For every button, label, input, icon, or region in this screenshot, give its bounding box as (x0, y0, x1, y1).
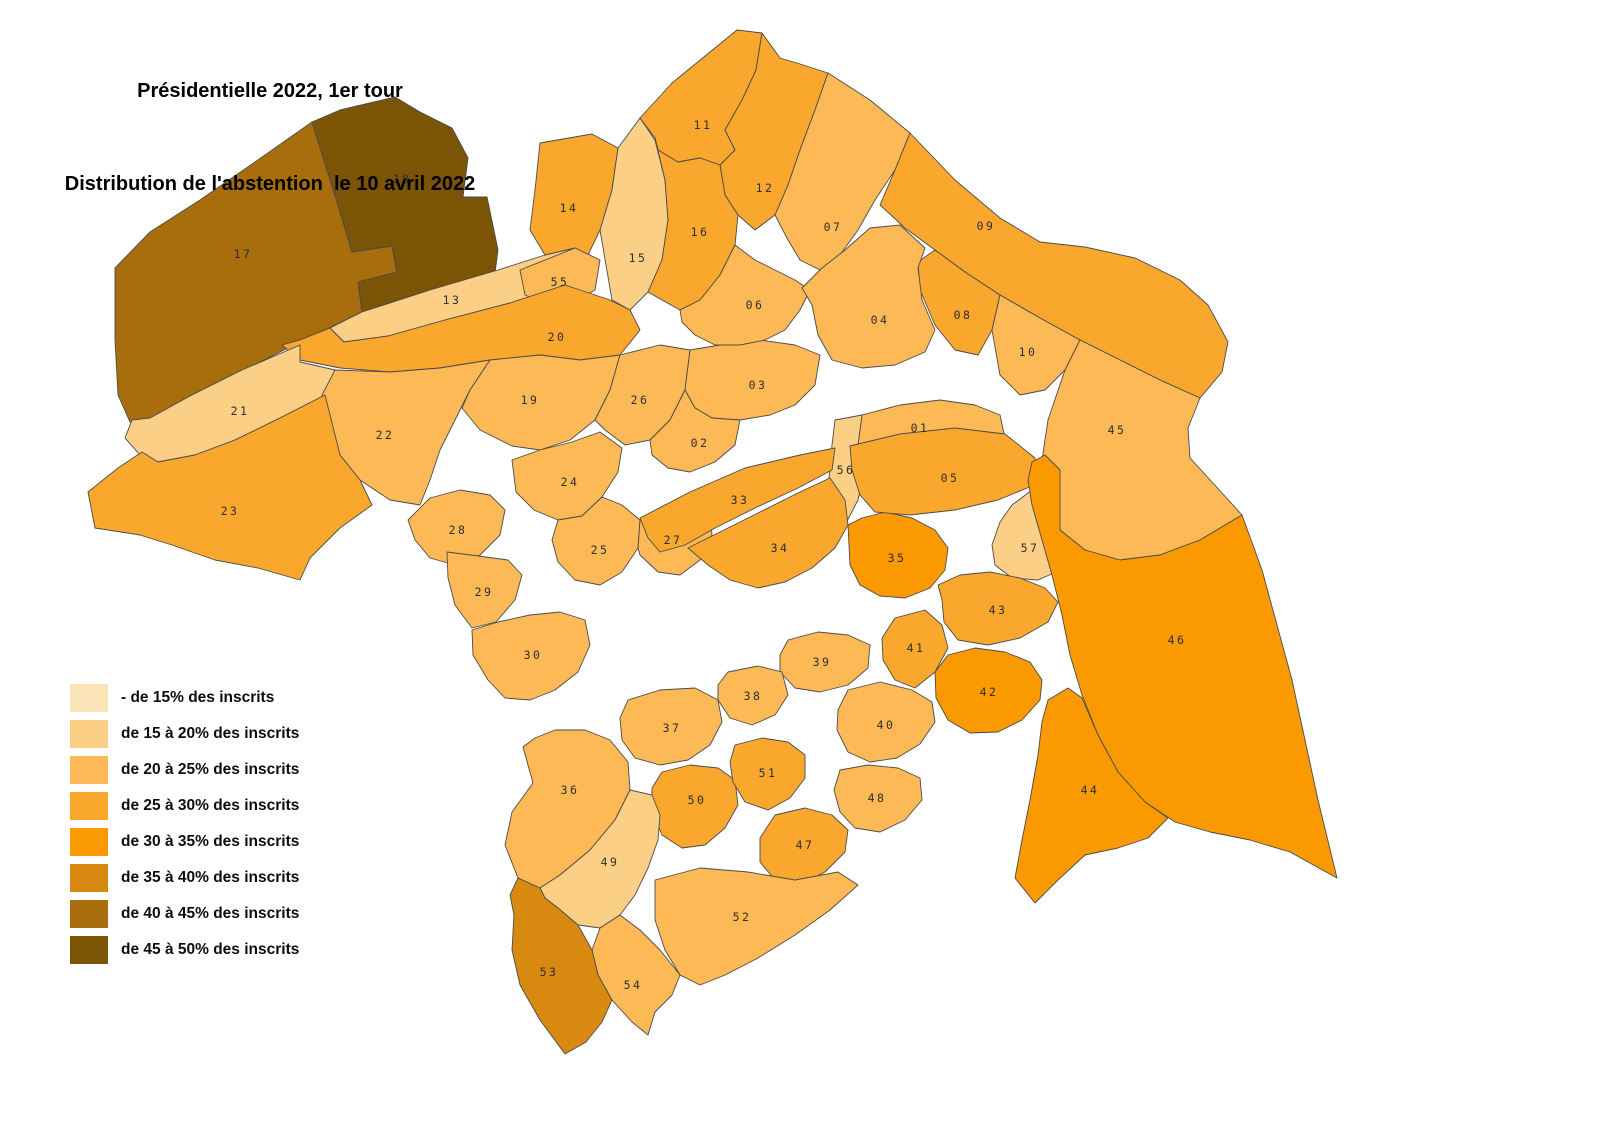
district-label-49: 49 (601, 855, 620, 869)
legend-label-4: de 25 à 30% des inscrits (121, 797, 299, 815)
district-label-19: 19 (521, 393, 540, 407)
district-label-41: 41 (907, 641, 926, 655)
district-label-39: 39 (813, 655, 832, 669)
district-label-13: 13 (443, 293, 462, 307)
legend-swatch-7 (70, 900, 108, 928)
district-label-50: 50 (688, 793, 707, 807)
district-label-27: 27 (664, 533, 683, 547)
legend-row-2: de 15 à 20% des inscrits (70, 720, 299, 748)
legend-label-6: de 35 à 40% des inscrits (121, 869, 299, 887)
district-label-24: 24 (561, 475, 580, 489)
district-label-15: 15 (629, 251, 648, 265)
district-label-45: 45 (1108, 423, 1127, 437)
district-label-43: 43 (989, 603, 1008, 617)
district-label-36: 36 (561, 783, 580, 797)
legend-swatch-4 (70, 792, 108, 820)
district-label-48: 48 (868, 791, 887, 805)
district-label-56: 56 (837, 463, 856, 477)
district-label-20: 20 (548, 330, 567, 344)
legend-row-4: de 25 à 30% des inscrits (70, 792, 299, 820)
map-title: Présidentielle 2022, 1er tour Distributi… (0, 14, 540, 262)
legend-label-8: de 45 à 50% des inscrits (121, 941, 299, 959)
district-label-40: 40 (877, 718, 896, 732)
district-label-03: 03 (749, 378, 768, 392)
legend-swatch-1 (70, 684, 108, 712)
district-label-28: 28 (449, 523, 468, 537)
legend-row-6: de 35 à 40% des inscrits (70, 864, 299, 892)
district-label-55: 55 (551, 275, 570, 289)
legend-label-7: de 40 à 45% des inscrits (121, 905, 299, 923)
district-label-29: 29 (475, 585, 494, 599)
district-label-57: 57 (1021, 541, 1040, 555)
district-label-09: 09 (977, 219, 996, 233)
district-label-04: 04 (871, 313, 890, 327)
legend-label-1: - de 15% des inscrits (121, 689, 274, 707)
legend-row-7: de 40 à 45% des inscrits (70, 900, 299, 928)
legend-row-3: de 20 à 25% des inscrits (70, 756, 299, 784)
district-label-47: 47 (796, 838, 815, 852)
legend-label-5: de 30 à 35% des inscrits (121, 833, 299, 851)
district-label-42: 42 (980, 685, 999, 699)
district-label-46: 46 (1168, 633, 1187, 647)
district-label-52: 52 (733, 910, 752, 924)
district-label-02: 02 (691, 436, 710, 450)
legend-swatch-2 (70, 720, 108, 748)
district-label-22: 22 (376, 428, 395, 442)
legend-swatch-6 (70, 864, 108, 892)
legend-row-5: de 30 à 35% des inscrits (70, 828, 299, 856)
district-label-16: 16 (691, 225, 710, 239)
district-label-11: 11 (694, 118, 713, 132)
legend-label-3: de 20 à 25% des inscrits (121, 761, 299, 779)
district-label-05: 05 (941, 471, 960, 485)
district-label-21: 21 (231, 404, 250, 418)
district-label-08: 08 (954, 308, 973, 322)
district-label-12: 12 (756, 181, 775, 195)
district-label-33: 33 (731, 493, 750, 507)
map-title-line1: Présidentielle 2022, 1er tour (0, 76, 540, 107)
legend-row-8: de 45 à 50% des inscrits (70, 936, 299, 964)
district-label-53: 53 (540, 965, 559, 979)
district-label-06: 06 (746, 298, 765, 312)
district-label-54: 54 (624, 978, 643, 992)
district-label-51: 51 (759, 766, 778, 780)
legend: - de 15% des inscritsde 15 à 20% des ins… (70, 684, 299, 972)
district-label-30: 30 (524, 648, 543, 662)
district-label-26: 26 (631, 393, 650, 407)
district-label-14: 14 (560, 201, 579, 215)
legend-label-2: de 15 à 20% des inscrits (121, 725, 299, 743)
legend-swatch-5 (70, 828, 108, 856)
district-label-25: 25 (591, 543, 610, 557)
district-label-10: 10 (1019, 345, 1038, 359)
legend-swatch-8 (70, 936, 108, 964)
map-title-line2: Distribution de l'abstention le 10 avril… (0, 169, 540, 200)
page: 1718131415111216070908104555202122192623… (0, 0, 1600, 1131)
district-52 (655, 868, 858, 985)
district-label-07: 07 (824, 220, 843, 234)
district-label-23: 23 (221, 504, 240, 518)
legend-swatch-3 (70, 756, 108, 784)
district-label-37: 37 (663, 721, 682, 735)
district-label-35: 35 (888, 551, 907, 565)
district-label-34: 34 (771, 541, 790, 555)
district-label-01: 01 (911, 421, 930, 435)
legend-row-1: - de 15% des inscrits (70, 684, 299, 712)
district-label-44: 44 (1081, 783, 1100, 797)
district-label-38: 38 (744, 689, 763, 703)
